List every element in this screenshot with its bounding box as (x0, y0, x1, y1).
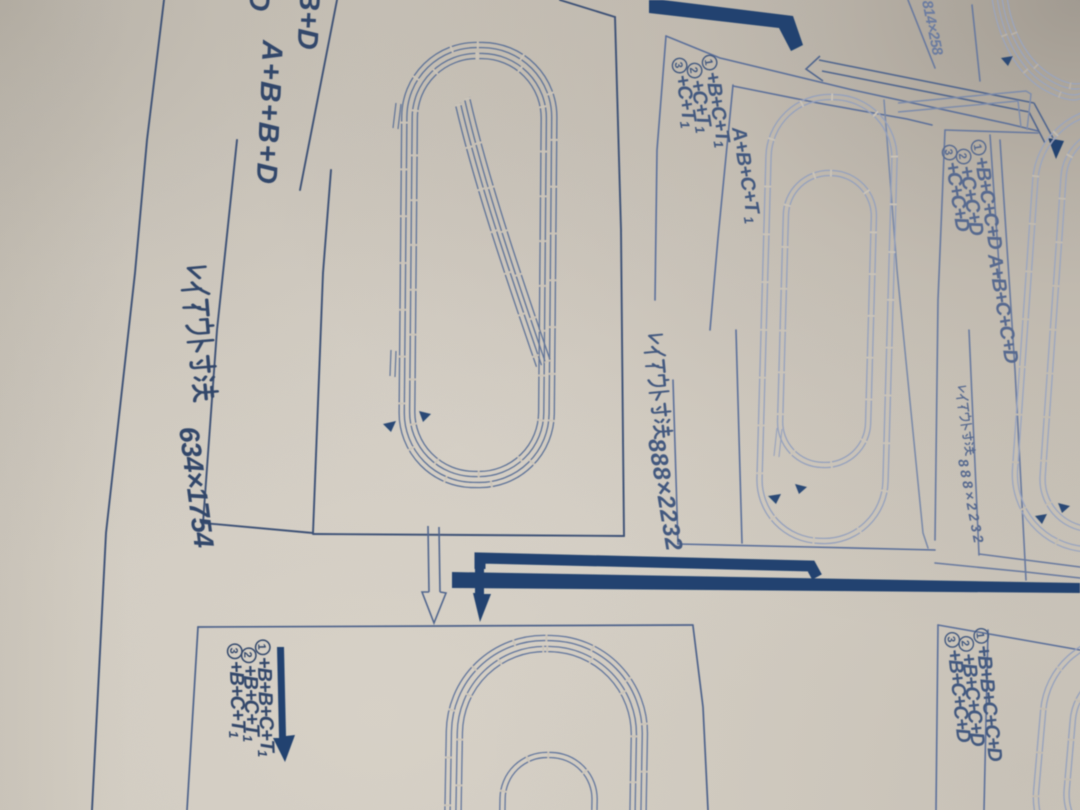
svg-text:3: 3 (944, 636, 957, 643)
svg-text:3: 3 (227, 647, 239, 654)
svg-text:2: 2 (241, 651, 253, 658)
svg-text:D: D (242, 0, 275, 12)
svg-text:1: 1 (226, 731, 241, 739)
svg-text:+B+D: +B+D (291, 0, 326, 51)
svg-text:1: 1 (973, 632, 986, 639)
svg-text:2: 2 (958, 640, 971, 647)
svg-text:+B+C+T: +B+C+T (225, 660, 250, 734)
svg-text:1: 1 (240, 735, 255, 743)
svg-text:1: 1 (255, 643, 267, 650)
svg-text:1: 1 (255, 750, 270, 758)
svg-text:A+B+B+D: A+B+B+D (250, 39, 288, 186)
